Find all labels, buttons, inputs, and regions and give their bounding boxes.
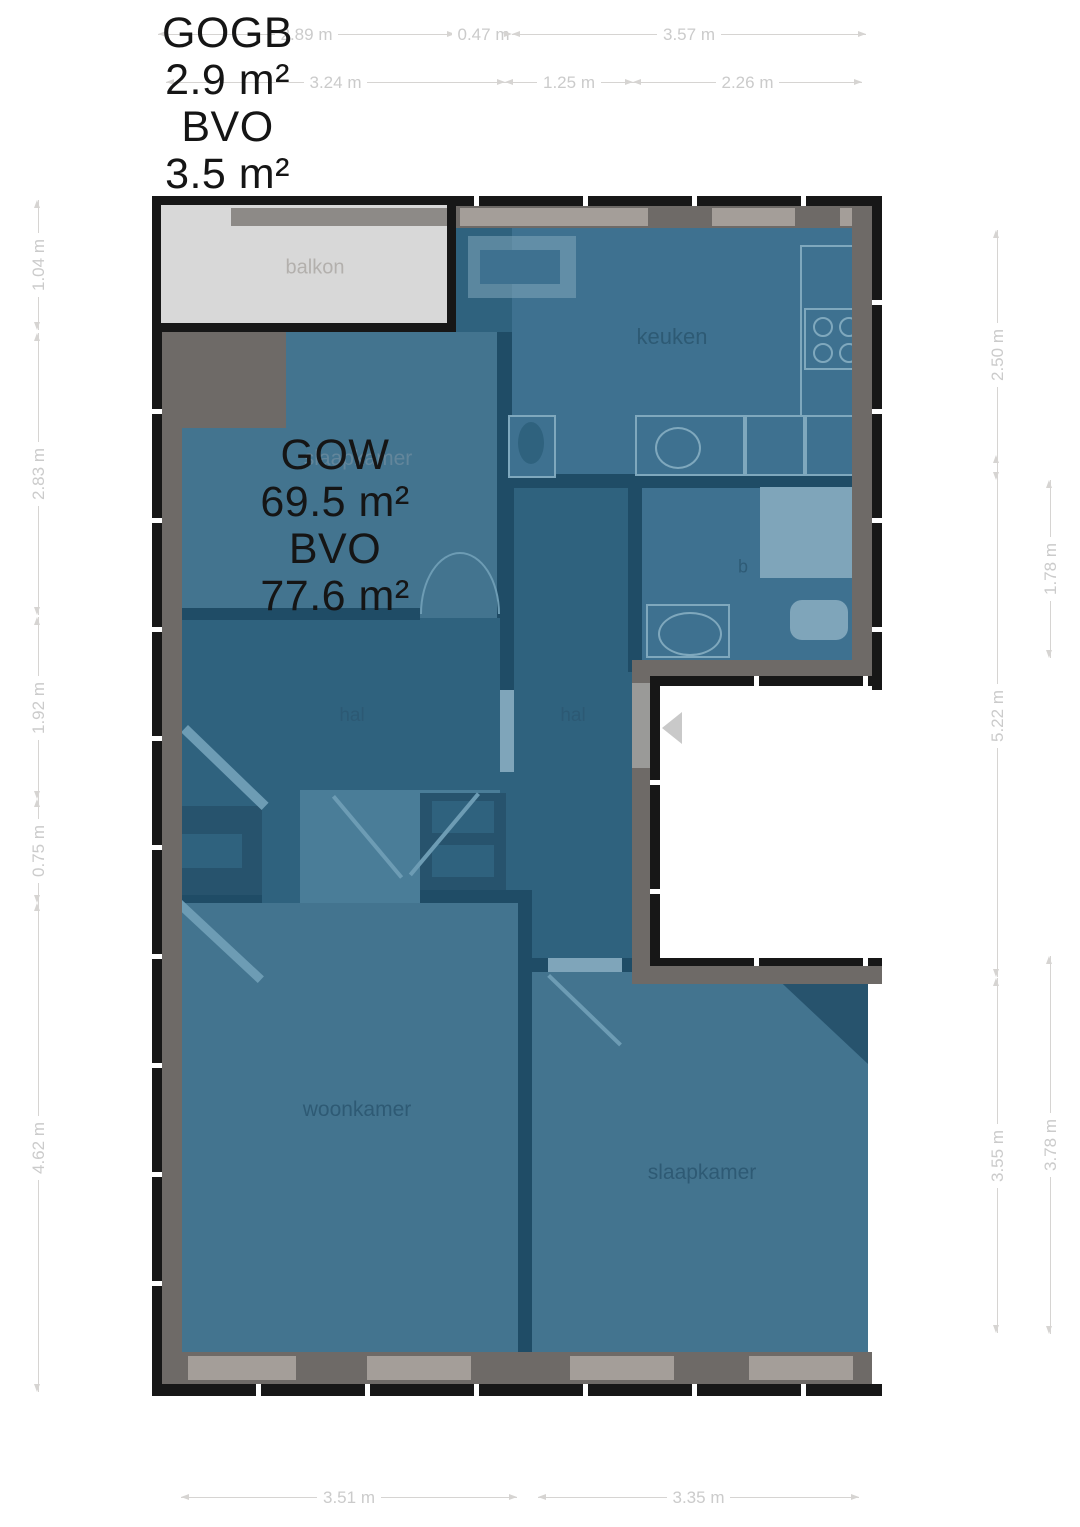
- dim-label: 1.04 m: [29, 233, 49, 297]
- dim-label: 2.83 m: [29, 442, 49, 506]
- dim-label: 0.47 m: [452, 25, 516, 45]
- annotation-line: BVO: [245, 526, 425, 573]
- room-woonkamer: [166, 903, 518, 1352]
- dim-top-inner-3: 2.26 m: [633, 82, 862, 83]
- cutout-wall-left-black: [650, 676, 660, 966]
- dim-bottom-1: 3.51 m: [181, 1497, 517, 1498]
- closet-drawer: [180, 834, 242, 868]
- wall-pier: [795, 206, 840, 228]
- dim-top-outer-2: 0.47 m: [455, 34, 512, 35]
- dim-left-1: 1.04 m: [38, 200, 39, 330]
- kitchen-cabinet-inner: [480, 250, 560, 284]
- cutout-door-opening: [632, 683, 650, 768]
- annotation-line: 3.5 m²: [150, 151, 305, 198]
- window-band-bottom: [570, 1356, 674, 1380]
- closet-drawer: [432, 801, 494, 833]
- toilet-icon: [790, 600, 848, 640]
- room-slaapkamer: [532, 958, 868, 1352]
- burner-icon: [813, 317, 833, 337]
- room-label-keuken: keuken: [637, 324, 708, 350]
- annotation-line: GOW: [245, 432, 425, 479]
- dim-label: 2.26 m: [716, 73, 780, 93]
- dim-label: 3.35 m: [667, 1488, 731, 1508]
- wall-block-under-balcony: [162, 332, 286, 428]
- vanity: [646, 604, 730, 658]
- room-label-hal-left: hal: [339, 705, 364, 727]
- door-opening-slaapkamer: [548, 958, 622, 972]
- window-band-bottom: [367, 1356, 471, 1380]
- dim-label: 1.78 m: [1041, 537, 1061, 601]
- wall-pier: [648, 206, 712, 228]
- dim-label: 3.24 m: [304, 73, 368, 93]
- wall-woonkamer-top-right: [420, 890, 518, 903]
- window-band-bottom: [188, 1356, 296, 1380]
- wc-nook: [508, 415, 556, 478]
- room-label-badkamer: b: [738, 557, 748, 578]
- dim-right-outer-2: 5.22 m: [997, 455, 998, 977]
- dim-right-outer-3: 3.55 m: [997, 978, 998, 1333]
- wall-badkamer-left: [628, 474, 642, 672]
- dim-top-inner-2: 1.25 m: [505, 82, 633, 83]
- balcony-wall-band: [231, 208, 447, 226]
- toilet-icon: [518, 422, 544, 464]
- window-band-bottom: [749, 1356, 853, 1380]
- cutout-wall-bottom-gray: [632, 966, 882, 984]
- dim-label: 5.22 m: [988, 684, 1008, 748]
- wall-hal-divider: [500, 480, 514, 690]
- dim-label: 0.75 m: [29, 819, 49, 883]
- cutout-white: [658, 690, 882, 958]
- sink-icon: [655, 427, 701, 469]
- dim-left-3: 1.92 m: [38, 617, 39, 799]
- outer-wall-left-black: [152, 196, 162, 1396]
- annotation-line: 69.5 m²: [245, 479, 425, 526]
- annotation-line: BVO: [150, 104, 305, 151]
- wall-woonkamer-slaapkamer: [518, 890, 532, 1352]
- kitchen-counter-sink: [635, 415, 745, 476]
- dim-bottom-2: 3.35 m: [538, 1497, 859, 1498]
- annotation-gow: GOW 69.5 m² BVO 77.6 m²: [245, 432, 425, 620]
- room-label-woonkamer: woonkamer: [303, 1098, 412, 1122]
- door-opening-hal: [500, 690, 514, 772]
- dim-label: 3.51 m: [317, 1488, 381, 1508]
- floorplan-canvas: 2.89 m 0.47 m 3.57 m 3.24 m 1.25 m 2.26 …: [0, 0, 1080, 1527]
- room-label-hal-right: hal: [560, 705, 585, 727]
- dim-right-inner-1: 1.78 m: [1050, 480, 1051, 658]
- annotation-line: 2.9 m²: [150, 57, 305, 104]
- dim-left-5: 4.62 m: [38, 903, 39, 1392]
- entrance-arrow-icon: [662, 712, 682, 744]
- annotation-gogb: GOGB 2.9 m² BVO 3.5 m²: [150, 10, 305, 198]
- dim-left-4: 0.75 m: [38, 799, 39, 903]
- dim-label: 4.62 m: [29, 1116, 49, 1180]
- cutout-wall-top-black: [650, 676, 882, 686]
- washbasin-icon: [658, 612, 722, 656]
- room-label-balkon: balkon: [286, 257, 345, 280]
- outer-wall-right-gray: [852, 206, 872, 682]
- dim-label: 3.57 m: [657, 25, 721, 45]
- dim-left-2: 2.83 m: [38, 333, 39, 615]
- dim-label: 3.78 m: [1041, 1113, 1061, 1177]
- annotation-line: 77.6 m²: [245, 573, 425, 620]
- outer-wall-right-black: [872, 196, 882, 690]
- dim-right-outer-1: 2.50 m: [997, 230, 998, 480]
- closet-drawer: [432, 845, 494, 877]
- dim-label: 1.25 m: [537, 73, 601, 93]
- dim-label: 1.92 m: [29, 676, 49, 740]
- dim-label: 2.50 m: [988, 323, 1008, 387]
- dim-right-inner-2: 3.78 m: [1050, 956, 1051, 1334]
- annotation-line: GOGB: [150, 10, 305, 57]
- dim-label: 3.55 m: [988, 1124, 1008, 1188]
- room-label-slaapkamer: slaapkamer: [648, 1161, 757, 1185]
- burner-icon: [813, 343, 833, 363]
- kitchen-counter-2: [745, 415, 805, 476]
- dim-top-outer-3: 3.57 m: [512, 34, 866, 35]
- outer-wall-bottom-black: [152, 1384, 882, 1396]
